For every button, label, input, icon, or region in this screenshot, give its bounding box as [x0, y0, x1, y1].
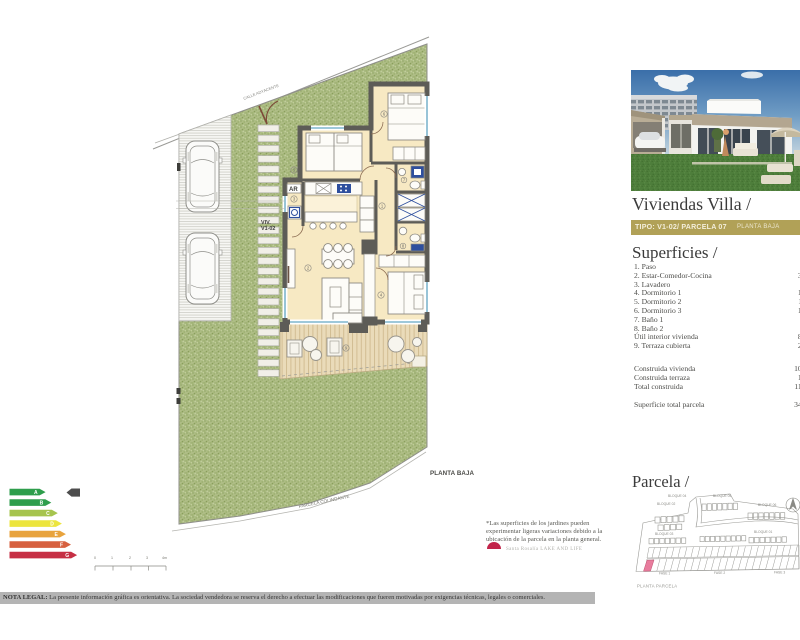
svg-text:1: 1 [111, 556, 113, 560]
svg-text:Santa Rosalía LAKE AND LIFE: Santa Rosalía LAKE AND LIFE [506, 547, 582, 552]
svg-text:AR: AR [289, 187, 298, 193]
svg-text:2: 2 [129, 556, 131, 560]
svg-text:CALLE ADYACENTE: CALLE ADYACENTE [243, 83, 280, 101]
svg-text:ubicación de la parcela en la: ubicación de la parcela en la planta gen… [486, 536, 602, 543]
svg-text:3: 3 [146, 556, 148, 560]
svg-text:experimentar ligeras variacion: experimentar ligeras variaciones debido … [486, 528, 602, 535]
svg-text:BLOQUE 01: BLOQUE 01 [754, 530, 772, 534]
svg-text:B: B [40, 501, 44, 507]
svg-text:*Las superficies de los jardin: *Las superficies de los jardines pueden [486, 520, 590, 527]
svg-text:BLOQUE 02: BLOQUE 02 [657, 502, 675, 506]
svg-text:D: D [50, 522, 54, 528]
svg-text:FASE 1: FASE 1 [659, 572, 670, 576]
svg-text:0: 0 [94, 556, 96, 560]
svg-text:PLANTA BAJA: PLANTA BAJA [430, 470, 474, 477]
svg-text:FASE 3: FASE 3 [774, 571, 785, 575]
svg-text:4m: 4m [162, 556, 167, 560]
svg-text:BLOQUE 03: BLOQUE 03 [655, 532, 673, 536]
svg-text:A: A [34, 490, 38, 496]
svg-text:BLOQUE 04: BLOQUE 04 [668, 494, 686, 498]
svg-text:BLOQUE 05: BLOQUE 05 [713, 494, 731, 498]
svg-text:V1-02: V1-02 [261, 226, 275, 232]
svg-text:FASE 2: FASE 2 [714, 571, 725, 575]
svg-text:BLOQUE 06: BLOQUE 06 [758, 503, 776, 507]
svg-text:F: F [60, 543, 63, 549]
svg-text:G: G [65, 553, 69, 559]
svg-text:C: C [46, 511, 50, 517]
